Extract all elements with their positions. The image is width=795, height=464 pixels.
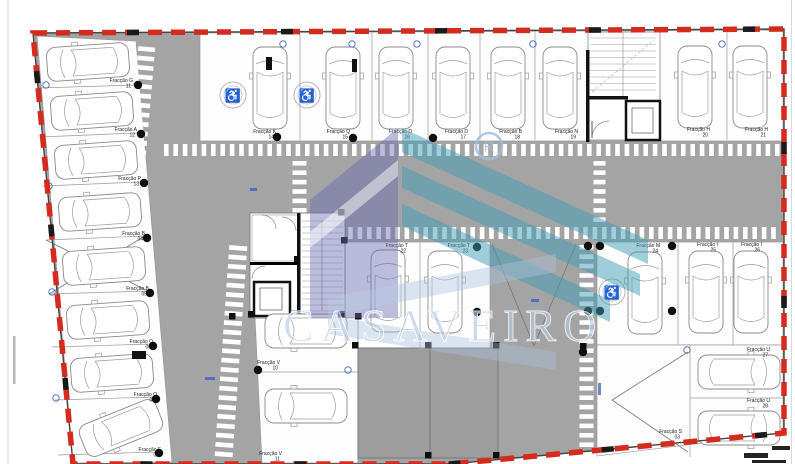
column-marker bbox=[140, 179, 148, 187]
walkway-stripe bbox=[756, 144, 761, 156]
ramp-box bbox=[358, 348, 430, 458]
car-body bbox=[379, 47, 413, 129]
walkway-stripe bbox=[267, 144, 272, 156]
walkway-stripe bbox=[728, 144, 733, 156]
walkway-stripe bbox=[521, 144, 526, 156]
car-icon bbox=[488, 47, 529, 129]
handicap-icon: ♿ bbox=[220, 82, 246, 108]
elevator-car bbox=[260, 288, 282, 310]
handicap-glyph: ♿ bbox=[299, 88, 315, 103]
walkway-stripe bbox=[580, 414, 594, 419]
car-icon bbox=[730, 46, 771, 128]
walkway-stripe bbox=[568, 144, 573, 156]
walkway-stripe bbox=[606, 144, 611, 156]
walkway-stripe bbox=[249, 144, 254, 156]
walkway-stripe bbox=[293, 180, 307, 185]
stair-block-top-right bbox=[586, 32, 660, 142]
walkway-stripe bbox=[653, 144, 658, 156]
stamp-fragment bbox=[752, 460, 786, 463]
car-icon bbox=[323, 47, 364, 129]
car-body bbox=[436, 47, 470, 129]
walkway-stripe bbox=[286, 144, 291, 156]
handicap-icon: ♿ bbox=[294, 82, 320, 108]
walkway-stripe bbox=[662, 144, 667, 156]
level-marker bbox=[598, 383, 601, 395]
handicap-glyph: ♿ bbox=[225, 88, 241, 103]
walkway-stripe bbox=[594, 189, 606, 194]
walkway-stripe bbox=[580, 424, 594, 429]
wall-stub bbox=[132, 351, 146, 359]
column-marker bbox=[254, 366, 262, 374]
walkway-stripe bbox=[192, 144, 197, 156]
walkway-stripe bbox=[333, 144, 338, 156]
registered-trademark-letter: R bbox=[484, 139, 495, 156]
walkway-stripe bbox=[211, 144, 216, 156]
column-marker bbox=[149, 342, 157, 350]
walkway-stripe bbox=[361, 144, 366, 156]
walkway-stripe bbox=[587, 144, 592, 156]
ramp-box bbox=[430, 348, 498, 458]
column-marker bbox=[668, 242, 676, 250]
floor-plan-sheet: ♿♿♿Fracção G11Fracção A12Fracção P13Frac… bbox=[0, 0, 795, 464]
car-icon bbox=[540, 47, 581, 129]
watermark-brand-text: CASAVEIRO bbox=[283, 300, 603, 351]
walkway-stripe bbox=[202, 144, 207, 156]
walkway-stripe bbox=[747, 144, 752, 156]
walkway-stripe bbox=[700, 144, 705, 156]
walkway-stripe bbox=[672, 144, 677, 156]
column-marker bbox=[143, 234, 151, 242]
walkway-stripe bbox=[580, 405, 594, 410]
wall-column-square bbox=[229, 313, 236, 320]
level-marker bbox=[250, 188, 257, 191]
walkway-stripe bbox=[277, 144, 282, 156]
walkway-stripe bbox=[293, 208, 307, 213]
walkway-stripe bbox=[293, 161, 307, 166]
walkway-stripe bbox=[643, 144, 648, 156]
elevator-car bbox=[632, 108, 653, 133]
walkway-stripe bbox=[230, 144, 235, 156]
car-body bbox=[628, 252, 662, 334]
walkway-stripe bbox=[559, 144, 564, 156]
column-marker bbox=[668, 307, 676, 315]
walkway-stripe bbox=[734, 227, 739, 239]
car-body bbox=[734, 251, 768, 333]
car-body bbox=[733, 46, 767, 128]
walkway-stripe bbox=[580, 283, 594, 288]
car-body bbox=[491, 47, 525, 129]
car-body bbox=[678, 46, 712, 128]
walkway-stripe bbox=[594, 199, 606, 204]
column-marker bbox=[584, 242, 592, 250]
walkway-stripe bbox=[352, 144, 357, 156]
walkway-stripe bbox=[681, 144, 686, 156]
car-icon bbox=[675, 46, 716, 128]
car-icon bbox=[731, 251, 772, 333]
car-icon bbox=[686, 251, 727, 333]
column-marker bbox=[349, 134, 357, 142]
car-body bbox=[689, 251, 723, 333]
plan-geometry: ♿♿♿Fracção G11Fracção A12Fracção P13Frac… bbox=[33, 29, 790, 464]
car-body bbox=[265, 389, 347, 423]
walkway-stripe bbox=[293, 170, 307, 175]
walkway-stripe bbox=[480, 227, 485, 239]
walkway-stripe bbox=[580, 358, 594, 363]
car-body bbox=[543, 47, 577, 129]
car-icon bbox=[376, 47, 417, 129]
wall-column-square bbox=[248, 311, 255, 318]
column-marker bbox=[273, 133, 281, 141]
wall-column-square bbox=[294, 256, 301, 263]
walkway-stripe bbox=[634, 144, 639, 156]
walkway-stripe bbox=[743, 227, 748, 239]
walkway-stripe bbox=[580, 395, 594, 400]
walkway-stripe bbox=[709, 144, 714, 156]
stamp-fragment bbox=[744, 453, 768, 458]
walkway-stripe bbox=[578, 144, 583, 156]
walkway-stripe bbox=[293, 189, 307, 194]
walkway-stripe bbox=[705, 227, 710, 239]
walkway-stripe bbox=[615, 144, 620, 156]
walkway-stripe bbox=[687, 227, 692, 239]
margin-annotation bbox=[13, 336, 16, 384]
walkway-stripe bbox=[305, 144, 310, 156]
column-marker bbox=[146, 289, 154, 297]
walkway-stripe bbox=[766, 144, 771, 156]
walkway-stripe bbox=[549, 144, 554, 156]
walkway-stripe bbox=[540, 144, 545, 156]
walkway-stripe bbox=[668, 227, 673, 239]
handicap-glyph: ♿ bbox=[604, 285, 620, 300]
walkway-stripe bbox=[220, 144, 225, 156]
walkway-stripe bbox=[594, 208, 606, 213]
walkway-stripe bbox=[343, 144, 348, 156]
column-marker bbox=[155, 449, 163, 457]
walkway-stripe bbox=[580, 377, 594, 382]
walkway-stripe bbox=[696, 227, 701, 239]
column-marker bbox=[137, 130, 145, 138]
walkway-stripe bbox=[677, 227, 682, 239]
walkway-stripe bbox=[164, 144, 169, 156]
wall-column-square bbox=[493, 452, 500, 459]
walkway-stripe bbox=[564, 227, 569, 239]
vestibule bbox=[252, 215, 298, 261]
wall-stub bbox=[266, 57, 272, 70]
walkway-stripe bbox=[625, 144, 630, 156]
walkway-stripe bbox=[596, 144, 601, 156]
car-icon bbox=[265, 386, 347, 427]
walkway-stripe bbox=[296, 144, 301, 156]
walkway-stripe bbox=[324, 144, 329, 156]
walkway-stripe bbox=[690, 144, 695, 156]
walkway-stripe bbox=[293, 199, 307, 204]
stamp-fragment bbox=[772, 446, 790, 450]
walkway-stripe bbox=[580, 433, 594, 438]
walkway-stripe bbox=[580, 386, 594, 391]
walkway-stripe bbox=[594, 170, 606, 175]
walkway-stripe bbox=[512, 144, 517, 156]
wall-column-square bbox=[425, 452, 432, 459]
walkway-stripe bbox=[775, 144, 780, 156]
walkway-stripe bbox=[649, 227, 654, 239]
column-marker bbox=[152, 395, 160, 403]
column-marker bbox=[134, 81, 142, 89]
walkway-stripe bbox=[258, 144, 263, 156]
wall bbox=[586, 96, 628, 100]
walkway-stripe bbox=[762, 227, 767, 239]
car-body bbox=[698, 355, 780, 389]
walkway-stripe bbox=[183, 144, 188, 156]
wall-stub bbox=[352, 59, 357, 72]
level-marker bbox=[205, 377, 215, 380]
car-icon bbox=[625, 252, 666, 334]
walkway-stripe bbox=[173, 144, 178, 156]
car-icon bbox=[433, 47, 474, 129]
walkway-stripe bbox=[314, 144, 319, 156]
floor-plan-svg: ♿♿♿Fracção G11Fracção A12Fracção P13Frac… bbox=[0, 0, 795, 464]
walkway-stripe bbox=[580, 442, 594, 447]
walkway-stripe bbox=[594, 161, 606, 166]
walkway-stripe bbox=[531, 144, 536, 156]
walkway-stripe bbox=[594, 180, 606, 185]
walkway-stripe bbox=[719, 144, 724, 156]
walkway-stripe bbox=[580, 367, 594, 372]
walkway-stripe bbox=[465, 144, 470, 156]
walkway-stripe bbox=[752, 227, 757, 239]
walkway-stripe bbox=[239, 144, 244, 156]
walkway-stripe bbox=[771, 227, 776, 239]
car-mirror bbox=[748, 445, 754, 449]
walkway-stripe bbox=[715, 227, 720, 239]
wall bbox=[250, 262, 298, 265]
walkway-stripe bbox=[724, 227, 729, 239]
walkway-stripe bbox=[658, 227, 663, 239]
walkway-stripe bbox=[737, 144, 742, 156]
